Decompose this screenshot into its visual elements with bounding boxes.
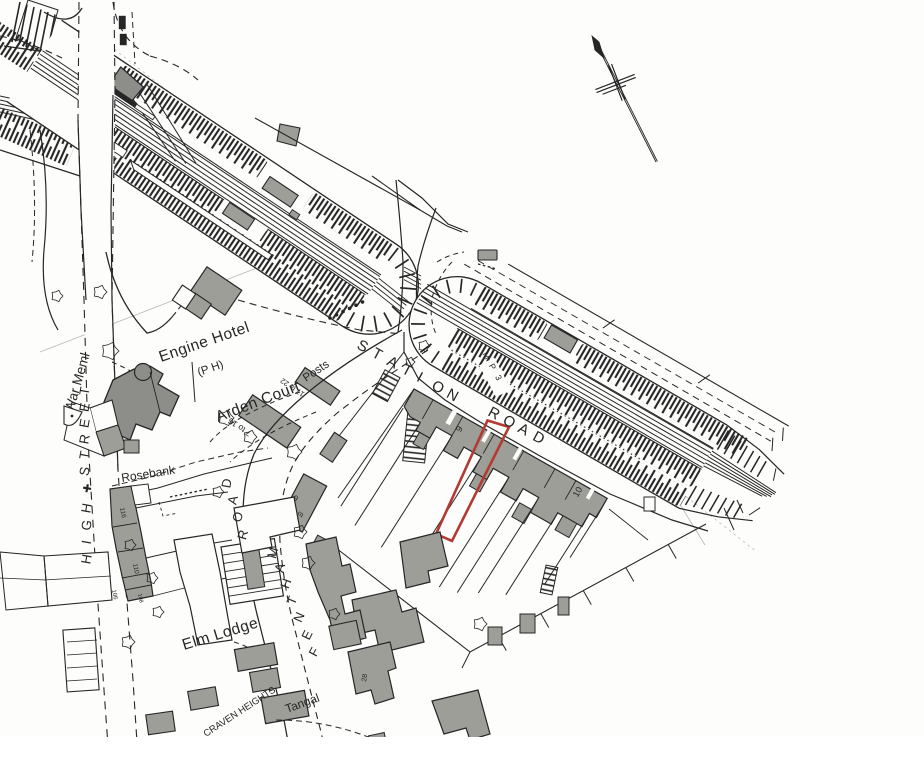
svg-text:28: 28 [361, 673, 369, 682]
